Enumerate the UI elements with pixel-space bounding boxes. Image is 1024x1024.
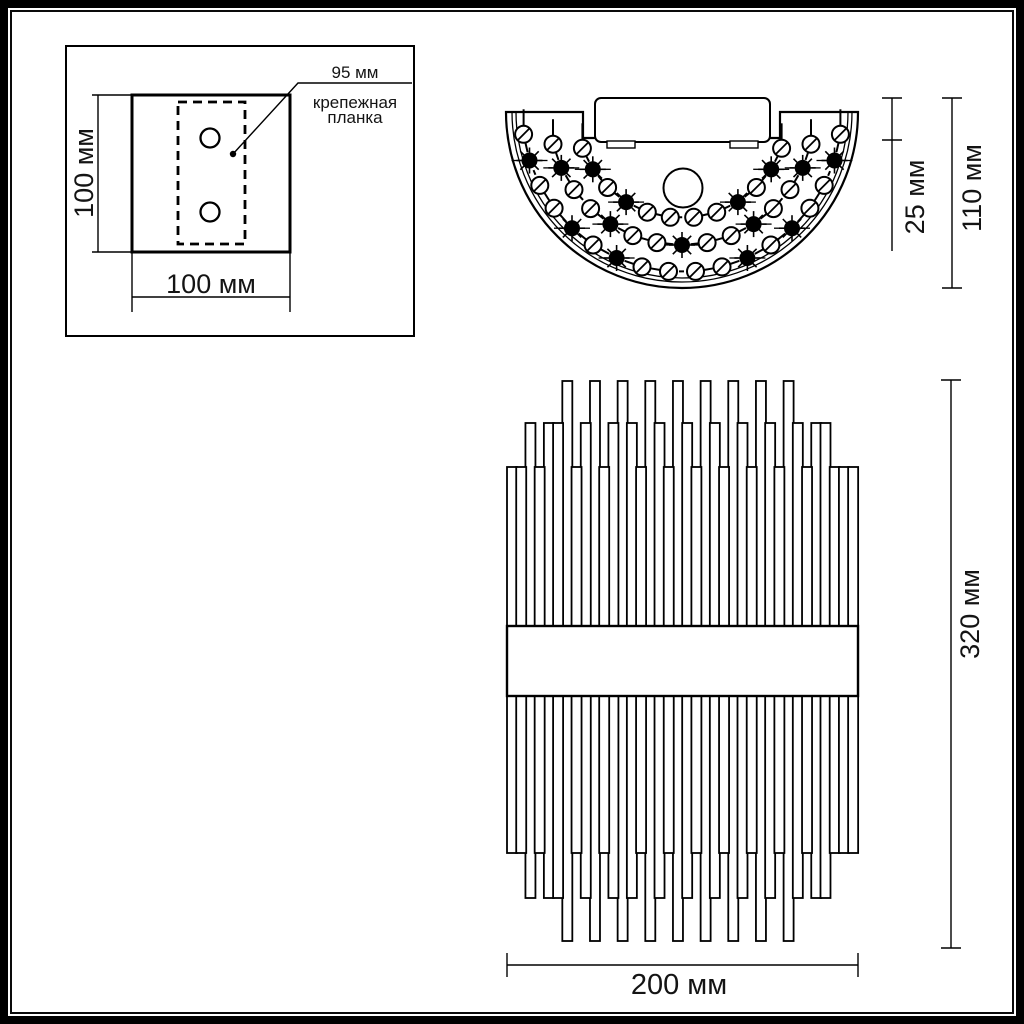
crystal-spark-bead	[784, 220, 800, 236]
crystal-spark-bead	[585, 161, 601, 177]
lamp-socket-circle	[664, 169, 703, 208]
technical-drawing-page: 95 мм крепежная планка 100 мм 100 мм 25 …	[0, 0, 1024, 1024]
top-view-drawing: 25 мм 110 мм	[480, 70, 1010, 320]
crystal-spark-bead	[522, 153, 538, 169]
mounting-box-tab-left	[607, 141, 635, 148]
mounting-box-tab-right	[730, 141, 758, 148]
plate-width-dim-label: 100 мм	[166, 269, 256, 299]
mounting-hole-bottom	[201, 203, 220, 222]
mounting-plate-drawing: 95 мм крепежная планка 100 мм 100 мм	[65, 45, 415, 337]
crystal-spark-bead	[795, 160, 811, 176]
crystal-spark-bead	[739, 250, 755, 266]
chain-segment	[665, 243, 673, 244]
mounting-box	[595, 98, 770, 142]
crystal-spark-bead	[763, 161, 779, 177]
box-depth-dim-label: 25 мм	[900, 160, 930, 235]
front-view-drawing: 320 мм 200 мм	[480, 360, 1010, 1015]
crystal-spark-bead	[553, 160, 569, 176]
chain-segment	[691, 243, 699, 244]
crystal-spark-bead	[730, 194, 746, 210]
plate-height-dim-label: 100 мм	[69, 128, 99, 218]
mounting-hole-top	[201, 129, 220, 148]
width-dim-label: 200 мм	[631, 969, 727, 1001]
crystal-spark-bead	[602, 216, 618, 232]
mounting-bar-dashed-outline	[178, 102, 245, 244]
crystal-spark-bead	[674, 237, 690, 253]
callout-text-line2: планка	[327, 108, 383, 127]
height-dim-label: 320 мм	[955, 569, 985, 659]
center-band	[507, 626, 858, 696]
total-depth-dim-label: 110 мм	[957, 144, 987, 232]
callout-leader-dot	[230, 151, 236, 157]
crystal-spark-bead	[564, 220, 580, 236]
crystal-spark-bead	[746, 216, 762, 232]
crystal-spark-bead	[609, 250, 625, 266]
callout-value-label: 95 мм	[331, 63, 378, 82]
crystal-spark-bead	[618, 194, 634, 210]
crystal-spark-bead	[827, 153, 843, 169]
